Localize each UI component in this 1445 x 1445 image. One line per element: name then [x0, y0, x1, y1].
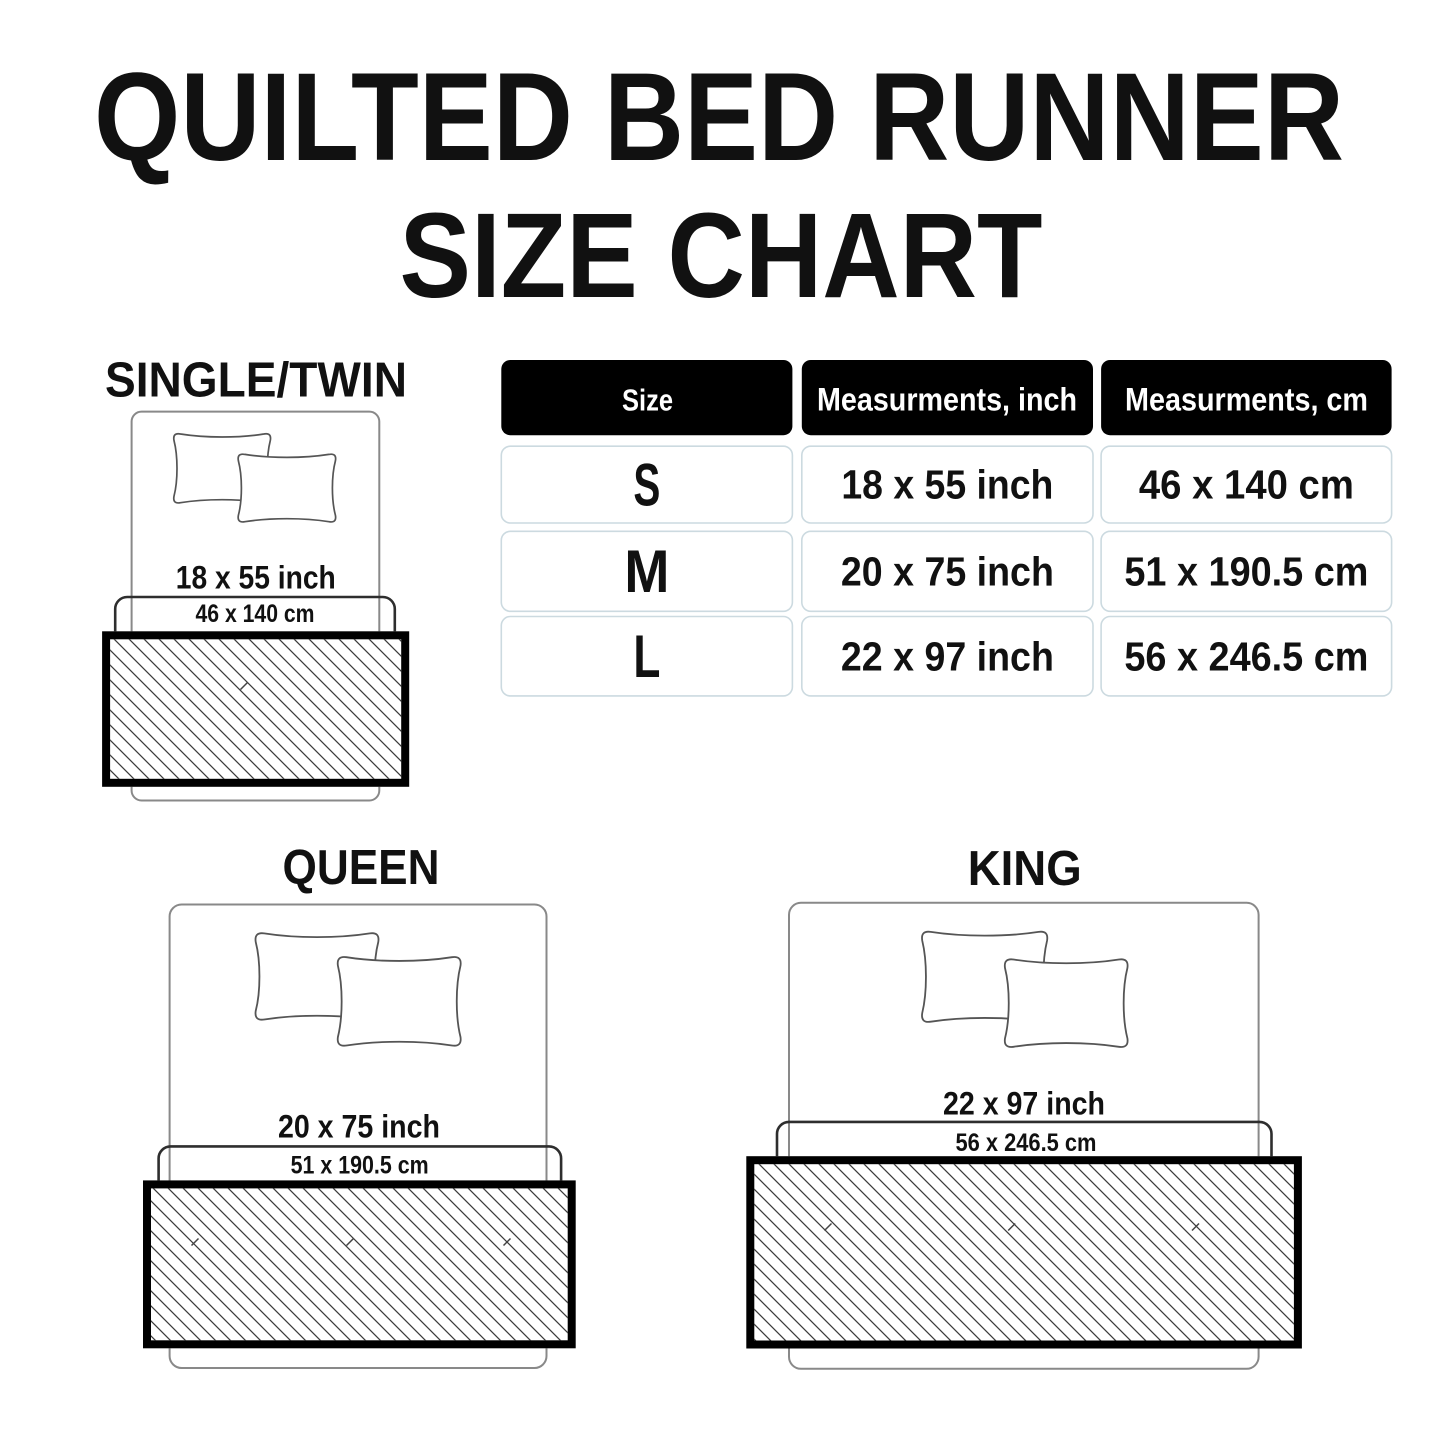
svg-text:20 x 75 inch: 20 x 75 inch [841, 548, 1054, 594]
svg-text:46 x 140 cm: 46 x 140 cm [196, 600, 315, 628]
svg-text:S: S [633, 451, 660, 518]
svg-text:Size: Size [622, 383, 673, 418]
svg-text:KING: KING [968, 842, 1082, 896]
svg-text:18 x 55 inch: 18 x 55 inch [841, 462, 1053, 508]
svg-text:18 x 55 inch: 18 x 55 inch [176, 560, 336, 596]
svg-text:QUEEN: QUEEN [283, 841, 440, 895]
svg-text:51 x 190.5 cm: 51 x 190.5 cm [1124, 548, 1368, 594]
svg-text:51 x 190.5 cm: 51 x 190.5 cm [291, 1151, 429, 1179]
svg-text:SINGLE/TWIN: SINGLE/TWIN [105, 354, 407, 408]
svg-text:Measurments, cm: Measurments, cm [1125, 382, 1368, 418]
svg-text:Measurments, inch: Measurments, inch [817, 382, 1077, 418]
svg-text:56 x 246.5 cm: 56 x 246.5 cm [1124, 633, 1368, 679]
svg-text:22 x 97 inch: 22 x 97 inch [841, 633, 1054, 679]
svg-text:L: L [633, 623, 660, 690]
svg-text:20 x 75 inch: 20 x 75 inch [278, 1108, 440, 1144]
svg-text:SIZE CHART: SIZE CHART [400, 187, 1043, 323]
svg-text:46 x 140 cm: 46 x 140 cm [1139, 462, 1354, 508]
svg-text:M: M [624, 538, 669, 605]
svg-text:QUILTED BED RUNNER: QUILTED BED RUNNER [94, 48, 1344, 187]
svg-text:56 x 246.5 cm: 56 x 246.5 cm [956, 1129, 1097, 1157]
svg-text:22 x 97 inch: 22 x 97 inch [943, 1086, 1105, 1122]
